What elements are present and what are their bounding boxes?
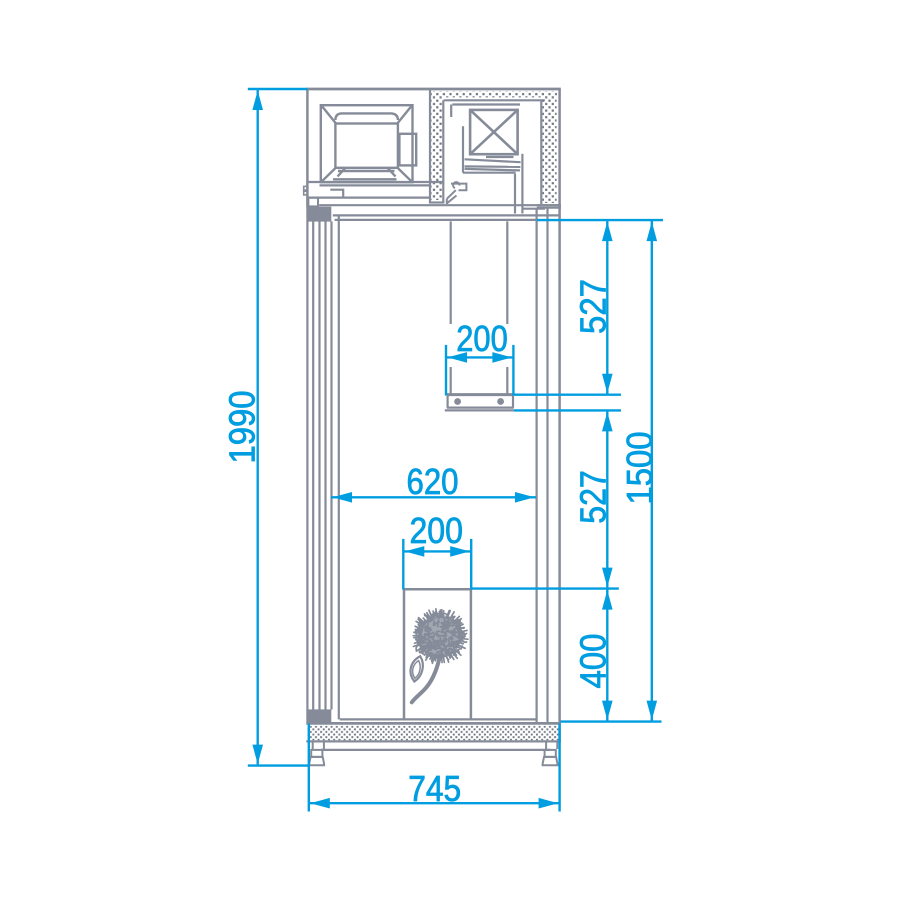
svg-text:527: 527 xyxy=(573,470,614,524)
svg-text:745: 745 xyxy=(408,768,461,809)
svg-text:620: 620 xyxy=(407,461,459,502)
svg-text:1990: 1990 xyxy=(222,391,263,464)
svg-text:200: 200 xyxy=(409,510,463,551)
svg-text:527: 527 xyxy=(573,279,614,334)
svg-text:200: 200 xyxy=(456,318,508,359)
svg-text:400: 400 xyxy=(573,634,614,689)
svg-text:1500: 1500 xyxy=(619,432,660,505)
